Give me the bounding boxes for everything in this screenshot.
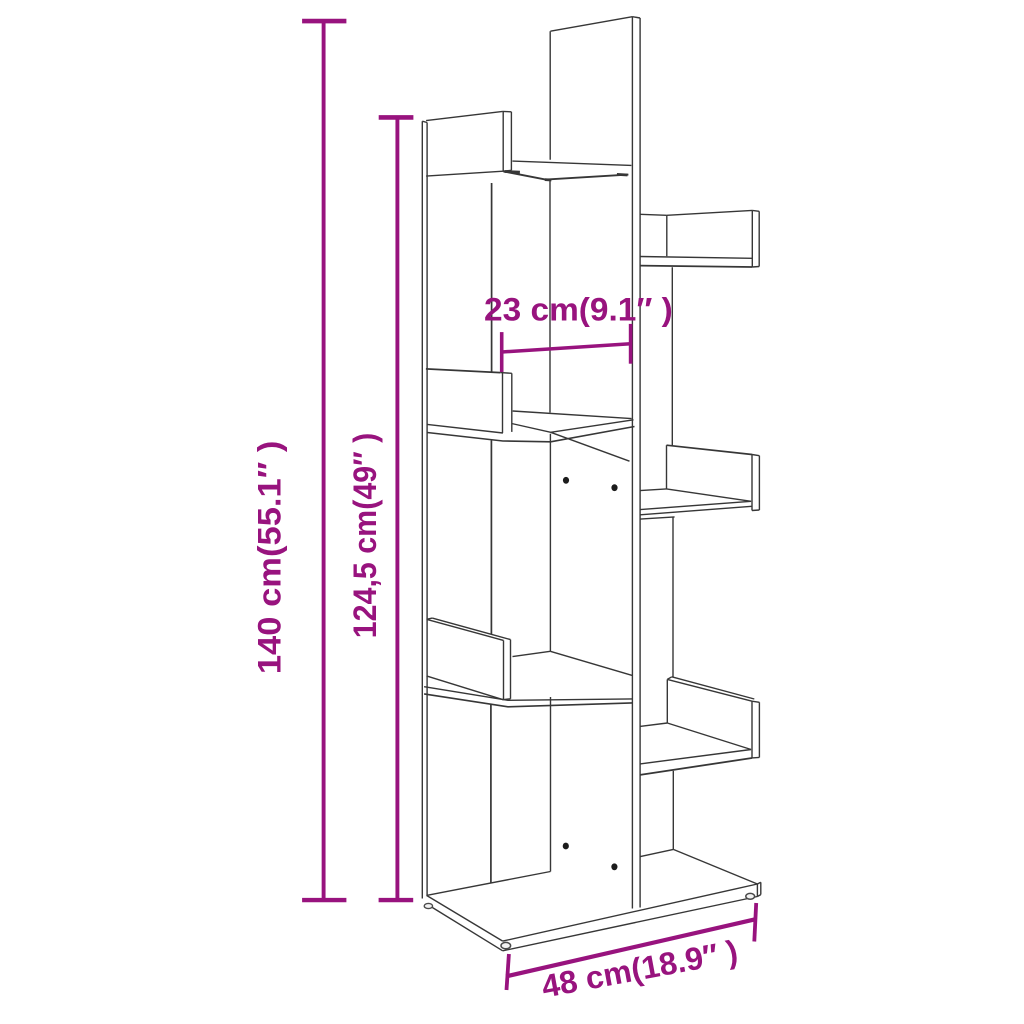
svg-text:23 cm(9.1″ ): 23 cm(9.1″ ) xyxy=(484,291,673,327)
svg-text:140 cm(55.1″ ): 140 cm(55.1″ ) xyxy=(252,441,288,675)
svg-text:124,5 cm(49″ ): 124,5 cm(49″ ) xyxy=(347,433,383,639)
